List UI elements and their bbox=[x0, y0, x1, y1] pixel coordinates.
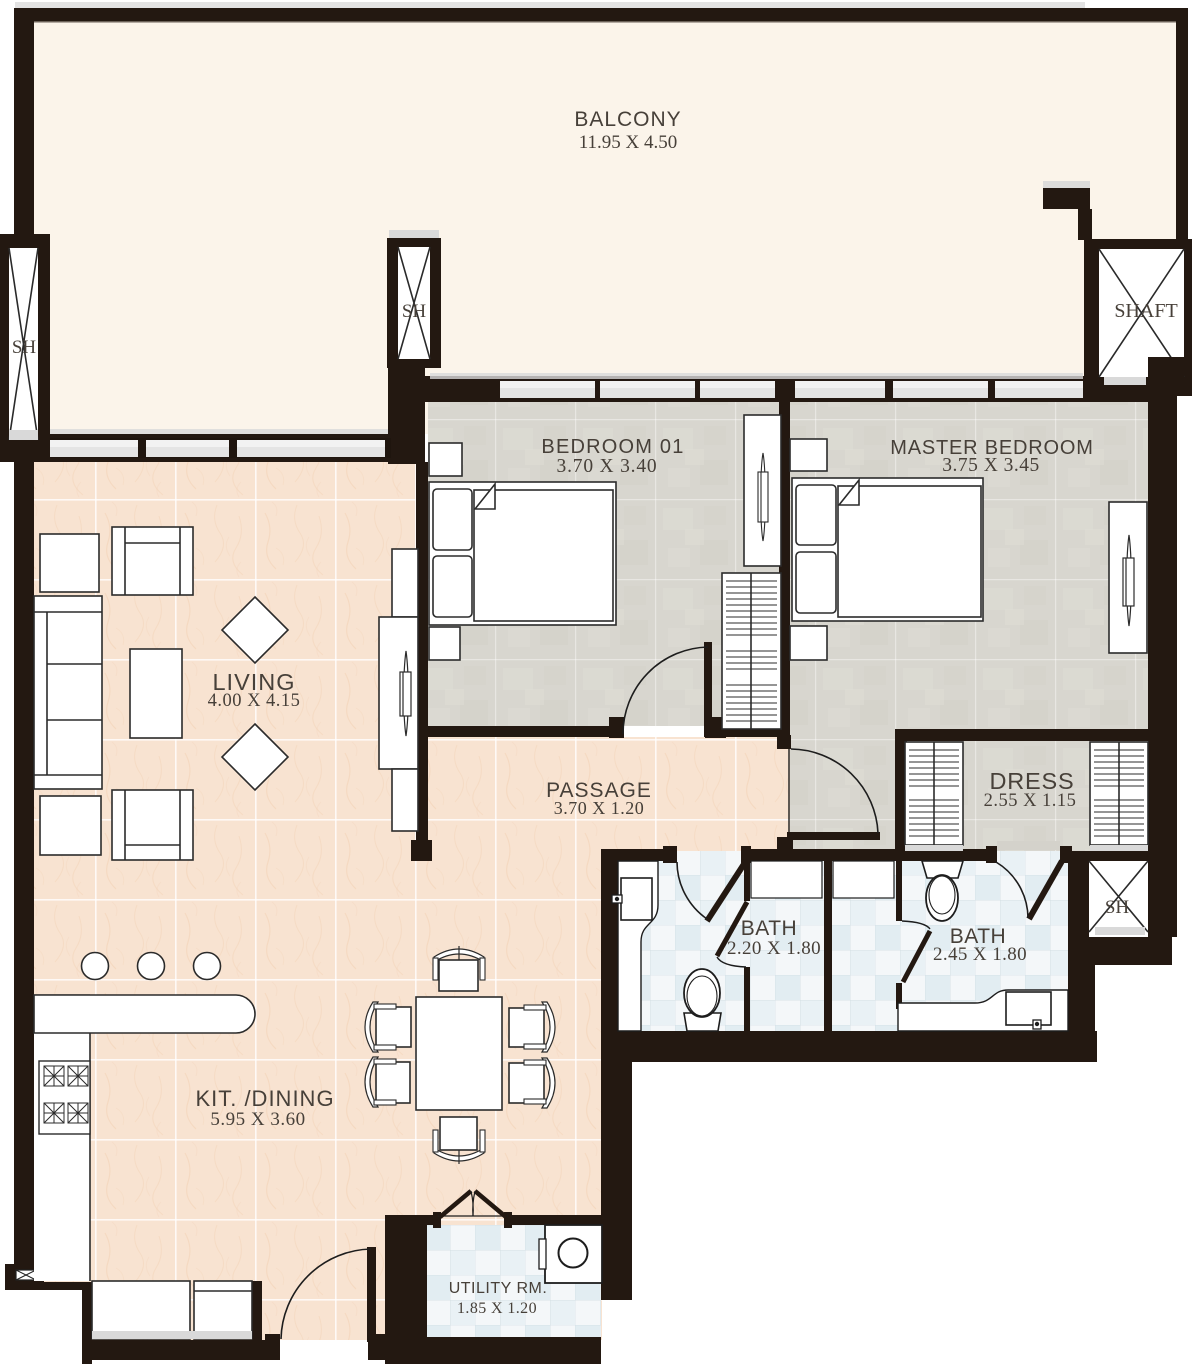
svg-text:SH: SH bbox=[12, 337, 37, 358]
svg-text:3.75 X 3.45: 3.75 X 3.45 bbox=[942, 455, 1040, 476]
svg-text:BALCONY: BALCONY bbox=[574, 108, 681, 131]
svg-text:SH: SH bbox=[402, 301, 427, 322]
svg-text:5.95 X 3.60: 5.95 X 3.60 bbox=[210, 1109, 305, 1130]
svg-text:3.70 X 1.20: 3.70 X 1.20 bbox=[554, 798, 645, 818]
svg-text:2.45 X 1.80: 2.45 X 1.80 bbox=[933, 944, 1027, 965]
svg-text:2.20 X 1.80: 2.20 X 1.80 bbox=[727, 938, 821, 959]
svg-text:11.95 X 4.50: 11.95 X 4.50 bbox=[579, 132, 678, 153]
svg-text:4.00 X 4.15: 4.00 X 4.15 bbox=[208, 691, 301, 711]
svg-text:SH: SH bbox=[1105, 897, 1130, 918]
svg-text:1.85 X 1.20: 1.85 X 1.20 bbox=[457, 1300, 537, 1317]
svg-text:UTILITY RM.: UTILITY RM. bbox=[449, 1280, 548, 1297]
svg-text:SHAFT: SHAFT bbox=[1114, 300, 1177, 322]
svg-text:2.55 X 1.15: 2.55 X 1.15 bbox=[984, 791, 1077, 811]
svg-text:KIT. /DINING: KIT. /DINING bbox=[195, 1086, 334, 1111]
svg-text:BEDROOM 01: BEDROOM 01 bbox=[541, 436, 684, 458]
svg-text:3.70 X 3.40: 3.70 X 3.40 bbox=[557, 456, 658, 477]
svg-text:BATH: BATH bbox=[741, 917, 797, 940]
